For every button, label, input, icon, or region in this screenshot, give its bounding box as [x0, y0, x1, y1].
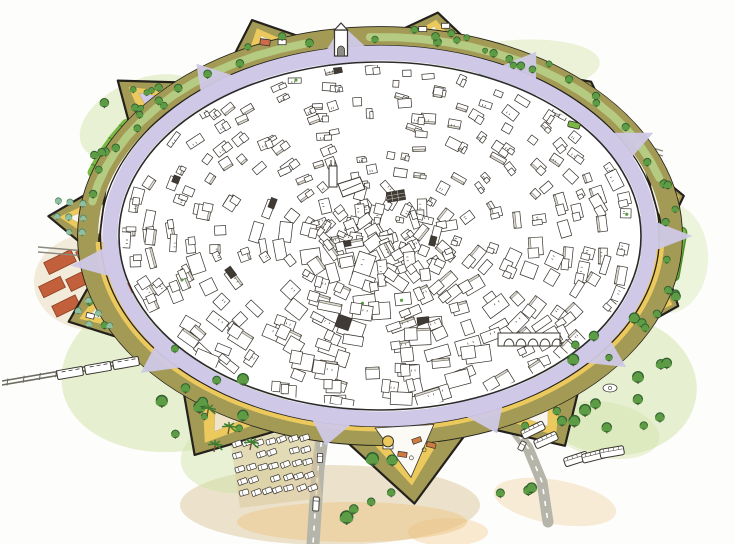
tree-canopy-lobe [340, 515, 347, 522]
tree-canopy-lobe [239, 428, 242, 431]
tree-canopy-lobe [98, 313, 101, 316]
tree-canopy-lobe [354, 508, 358, 512]
illustration-stage [0, 0, 734, 544]
tree-canopy-lobe [83, 217, 86, 220]
building-shaded-face [413, 149, 424, 152]
tree-canopy-lobe [55, 200, 59, 204]
tree-canopy-lobe [159, 87, 163, 91]
building [145, 229, 157, 246]
building-annex [449, 302, 460, 313]
building [357, 156, 367, 163]
tree-canopy-lobe [411, 29, 415, 33]
tree-canopy-lobe [197, 401, 202, 406]
tree-canopy-lobe [664, 289, 668, 293]
tree-canopy-lobe [579, 409, 585, 415]
tree-canopy-lobe [574, 420, 579, 425]
tree-canopy-lobe [130, 89, 133, 92]
tree-canopy-lobe [282, 36, 286, 40]
building [324, 380, 341, 393]
building [420, 268, 431, 281]
building-block [393, 168, 407, 178]
tree-canopy-lobe [367, 501, 371, 505]
building [400, 347, 414, 362]
building-annex [133, 255, 141, 261]
tree-canopy-lobe [485, 50, 488, 53]
tree-canopy-lobe [85, 299, 88, 302]
tree-canopy-lobe [557, 410, 561, 414]
tree-canopy-lobe [86, 323, 89, 326]
tree-canopy-lobe [243, 414, 248, 419]
tree-canopy-lobe [66, 231, 69, 234]
tree-canopy-lobe [438, 41, 442, 45]
building [527, 237, 543, 258]
tree-canopy-lobe [500, 492, 504, 496]
tree-canopy-lobe [159, 100, 163, 104]
tree-canopy-lobe [633, 398, 638, 403]
tree-canopy-lobe [467, 37, 470, 40]
tree-canopy-lobe [83, 203, 86, 206]
building [432, 358, 451, 369]
tree-canopy-lobe [97, 151, 101, 155]
orchard-tree [55, 198, 62, 205]
tree-canopy-lobe [79, 203, 83, 207]
tree-canopy-lobe [140, 114, 143, 117]
tree-canopy-lobe [447, 32, 451, 36]
tree-canopy-lobe [175, 433, 179, 437]
tree-canopy-lobe [645, 327, 649, 331]
building [398, 98, 412, 108]
tree-canopy-lobe [661, 362, 666, 367]
building [403, 70, 412, 77]
tree-canopy-lobe [88, 300, 91, 303]
tree-canopy-lobe [663, 259, 667, 263]
building-annex [373, 67, 380, 74]
palm-crown [214, 443, 216, 445]
tree-canopy-lobe [137, 107, 140, 110]
tree-canopy-lobe [57, 216, 60, 219]
tree-canopy-lobe [521, 65, 525, 69]
tree-canopy-lobe [79, 231, 83, 235]
tree-canopy-lobe [373, 458, 379, 464]
building-block [400, 347, 414, 362]
building-block [415, 131, 427, 138]
tree-canopy-lobe [160, 105, 164, 109]
tree-canopy-lobe [133, 127, 137, 131]
tree-canopy-lobe [482, 50, 485, 53]
building-annex [460, 345, 475, 359]
tree-canopy-lobe [640, 425, 644, 429]
tree-canopy-lobe [349, 508, 354, 513]
tree-canopy-lobe [533, 69, 536, 72]
tree-canopy-lobe [171, 348, 175, 352]
building [415, 131, 427, 138]
tree-canopy-lobe [93, 193, 97, 197]
tree-canopy-lobe [371, 501, 375, 505]
tree-canopy-lobe [101, 324, 105, 328]
building [369, 282, 378, 292]
building [413, 147, 426, 152]
building-annex [391, 341, 401, 350]
tree-canopy-lobe [656, 363, 661, 368]
tree-canopy-lobe [193, 405, 199, 411]
tree-canopy-lobe [505, 58, 509, 62]
building [130, 255, 142, 267]
tree-canopy-lobe [529, 68, 533, 72]
tree-canopy-lobe [175, 348, 179, 352]
tree-canopy-lobe [641, 327, 645, 331]
tree-canopy-lobe [496, 492, 501, 497]
building-annex [370, 112, 373, 119]
tree-canopy-lobe [208, 73, 212, 77]
building-annex [308, 228, 318, 239]
tree-canopy-lobe [94, 154, 98, 158]
building-annex [528, 248, 539, 258]
tree-canopy-lobe [517, 65, 521, 69]
tree-canopy-lobe [243, 378, 249, 384]
tree-canopy-lobe [589, 335, 594, 340]
tree-canopy-lobe [626, 126, 630, 130]
tree-canopy-lobe [102, 152, 106, 156]
building-annex [324, 380, 332, 389]
tree-canopy-lobe [212, 379, 217, 384]
building-annex [400, 364, 410, 376]
tree-canopy-lobe [573, 358, 579, 364]
tree-canopy-lobe [453, 39, 457, 43]
palm-crown [228, 425, 230, 427]
tree-canopy-lobe [66, 201, 70, 205]
building-block [403, 70, 412, 77]
building-block [394, 292, 411, 306]
tree-canopy-lobe [510, 64, 514, 68]
tree-canopy-lobe [90, 154, 94, 158]
building-annex [532, 219, 542, 225]
gate-arch [338, 46, 345, 56]
tree-canopy-lobe [575, 344, 579, 348]
tree-canopy-lobe [571, 344, 575, 348]
building-shaded-face [366, 367, 378, 370]
tree-canopy-lobe [75, 310, 78, 313]
building [393, 168, 407, 178]
tree-canopy-lobe [164, 105, 168, 109]
tree-canopy-lobe [605, 357, 609, 361]
tree-canopy-lobe [657, 313, 661, 317]
tree-canopy-lobe [667, 259, 671, 263]
gate-tower-roof [335, 23, 348, 30]
tree-canopy-lobe [632, 376, 638, 382]
tree-canopy-lobe [647, 161, 651, 165]
tree-canopy-lobe [463, 37, 466, 40]
building [353, 97, 362, 106]
building-block [214, 226, 226, 236]
building [620, 209, 631, 218]
tree-canopy-lobe [174, 87, 178, 91]
tree-canopy-lobe [237, 378, 243, 384]
tree-canopy-lobe [106, 325, 109, 328]
tree-canopy-lobe [248, 46, 251, 49]
building-annex [420, 175, 426, 179]
tree-canopy-lobe [607, 427, 612, 432]
tree-canopy-lobe [557, 420, 562, 425]
tree-canopy-lobe [655, 416, 660, 421]
building-block [339, 256, 354, 269]
tree-canopy-lobe [69, 216, 72, 219]
tree-canopy-lobe [305, 42, 309, 46]
tree-canopy-lobe [664, 184, 668, 188]
wash-blob [490, 470, 620, 535]
tree-canopy-lobe [162, 400, 168, 406]
tree-canopy-lobe [386, 459, 392, 465]
tree-canopy-lobe [95, 169, 99, 173]
building-annex [126, 227, 136, 231]
building [411, 114, 425, 125]
building-annex [350, 302, 362, 314]
building-block [353, 97, 362, 106]
building [433, 87, 443, 98]
tree-canopy-lobe [675, 209, 678, 212]
truck-body [313, 497, 320, 511]
tree-canopy-lobe [653, 313, 657, 317]
building-annex [617, 249, 625, 256]
building-annex [396, 216, 400, 220]
tree-canopy-lobe [667, 362, 672, 367]
building [366, 367, 380, 379]
building-annex [132, 197, 139, 205]
tree-canopy-lobe [660, 416, 664, 420]
tree-canopy-lobe [668, 184, 672, 188]
tree-canopy-lobe [596, 95, 600, 99]
building-annex [167, 219, 174, 228]
tree-canopy-lobe [568, 419, 574, 425]
tree-canopy-lobe [58, 200, 61, 203]
tree-canopy-lobe [104, 102, 108, 106]
pavilion-dome [383, 436, 394, 447]
building [339, 256, 354, 269]
tree-canopy-lobe [69, 232, 72, 235]
building-annex [324, 135, 331, 141]
tree-canopy-lobe [596, 403, 601, 408]
palm-crown [207, 407, 209, 409]
tree-canopy-lobe [205, 416, 208, 419]
building-annex [339, 87, 343, 92]
building-annex [281, 384, 289, 394]
building [422, 73, 435, 79]
truck [313, 497, 320, 511]
tree-canopy-lobe [201, 416, 205, 420]
building [596, 215, 607, 232]
building [170, 234, 177, 252]
tree-canopy-lobe [148, 90, 151, 93]
tree-canopy-lobe [387, 491, 391, 495]
tree-canopy-lobe [569, 79, 573, 83]
tree-canopy-lobe [82, 232, 85, 235]
tree-canopy-lobe [594, 335, 599, 340]
tree-canopy-lobe [70, 202, 73, 205]
building [214, 226, 226, 236]
palm-crown [250, 441, 252, 443]
tree-canopy-lobe [546, 63, 549, 66]
tree-canopy-lobe [54, 216, 57, 219]
tree-canopy-lobe [532, 487, 537, 492]
tree-canopy-lobe [494, 53, 498, 57]
tree-canopy-lobe [391, 492, 395, 496]
tree-canopy-lobe [137, 128, 141, 132]
tree-canopy-lobe [609, 357, 612, 360]
building-block [387, 151, 396, 159]
red-roof-house [260, 39, 271, 46]
tree-canopy-lobe [133, 89, 136, 92]
tree-canopy-lobe [217, 379, 221, 383]
tree-canopy-lobe [155, 86, 159, 90]
park-fountain [603, 384, 617, 392]
tree-canopy-lobe [590, 402, 595, 407]
tree-canopy-lobe [451, 33, 455, 37]
tree-canopy-lobe [244, 46, 248, 50]
tree-canopy-lobe [203, 73, 207, 77]
building-annex [323, 116, 329, 122]
tree-canopy-lobe [643, 161, 647, 165]
building [394, 292, 411, 306]
tree-canopy-lobe [525, 425, 529, 429]
tree-canopy-lobe [509, 58, 513, 62]
tree-canopy-lobe [666, 221, 670, 225]
building-block [369, 282, 378, 292]
building-annex [330, 395, 342, 405]
building [366, 109, 373, 119]
building [393, 80, 399, 87]
car-body [317, 453, 323, 462]
tree-canopy-lobe [116, 147, 120, 151]
building-block [422, 73, 435, 79]
building-block [393, 80, 399, 87]
building [513, 212, 522, 229]
tree-canopy-lobe [136, 114, 140, 118]
tree-canopy-lobe [671, 295, 676, 300]
tree-canopy-lobe [181, 387, 186, 392]
tree-canopy-lobe [414, 29, 418, 33]
tree-canopy-lobe [278, 35, 282, 39]
building [288, 78, 301, 83]
bastion-house [442, 23, 450, 28]
tree-canopy-lobe [431, 35, 435, 39]
tree-canopy-lobe [567, 358, 573, 364]
tree-canopy-lobe [95, 312, 98, 315]
walled-city-map-illustration [0, 0, 734, 544]
tree-canopy-lobe [240, 63, 244, 67]
building [317, 132, 332, 140]
tree-canopy-lobe [622, 126, 626, 130]
tree-canopy-lobe [65, 216, 69, 220]
tree-canopy-lobe [672, 208, 676, 212]
building-annex [418, 117, 425, 125]
tree-canopy-lobe [596, 102, 600, 106]
domed-pavilion [383, 436, 394, 449]
building-annex [405, 156, 410, 162]
building-annex [381, 379, 390, 393]
tree-canopy-lobe [489, 52, 493, 56]
building-annex [362, 158, 367, 162]
building-block [420, 268, 431, 281]
tree-canopy-lobe [80, 217, 83, 220]
tree-canopy-lobe [186, 387, 190, 391]
tree-canopy-lobe [526, 486, 531, 491]
tree-canopy-lobe [392, 459, 397, 464]
building-annex [202, 203, 213, 213]
tree-canopy-lobe [602, 426, 607, 431]
tree-canopy-lobe [562, 420, 567, 425]
tree-canopy-lobe [668, 289, 672, 293]
building-annex [290, 350, 303, 364]
church-tower [329, 166, 337, 187]
building-annex [572, 212, 581, 221]
tree-canopy-lobe [644, 425, 648, 429]
bastion-house [419, 27, 427, 32]
building-block [170, 234, 177, 252]
car [317, 453, 323, 462]
tree-canopy-lobe [375, 39, 378, 42]
tree-canopy-lobe [638, 376, 644, 382]
building-annex [271, 381, 280, 392]
tree-canopy-lobe [310, 42, 314, 46]
tree-canopy-lobe [131, 107, 135, 111]
tree-canopy-lobe [171, 433, 175, 437]
tree-canopy-lobe [100, 102, 105, 107]
tree-canopy-lobe [662, 221, 666, 225]
tree-canopy-lobe [366, 457, 373, 464]
tree-canopy-lobe [593, 102, 597, 106]
tree-canopy-lobe [513, 65, 516, 68]
building-annex [404, 328, 417, 341]
building-annex [374, 203, 385, 215]
building [366, 164, 377, 175]
tree-canopy-lobe [585, 409, 591, 415]
tree-canopy-lobe [178, 87, 182, 91]
building-block [390, 392, 412, 406]
tree-canopy-lobe [457, 39, 460, 42]
tree-canopy-lobe [89, 193, 93, 197]
tree-canopy-lobe [565, 78, 569, 82]
tree-canopy-lobe [592, 95, 596, 99]
tree-canopy-lobe [371, 38, 375, 42]
tree-canopy-lobe [89, 323, 92, 326]
tree-canopy-lobe [660, 183, 664, 187]
tree-canopy-lobe [106, 151, 110, 155]
tree-canopy-lobe [99, 169, 103, 173]
tree-canopy-lobe [629, 317, 635, 323]
tree-canopy-lobe [638, 398, 643, 403]
tree-canopy-lobe [521, 425, 525, 429]
tree-canopy-lobe [433, 41, 437, 45]
tree-canopy-lobe [141, 108, 144, 111]
tree-canopy-lobe [436, 36, 440, 40]
tree-canopy-lobe [347, 516, 353, 522]
tree-canopy-lobe [112, 147, 116, 151]
building-block [398, 98, 412, 108]
market-stall [398, 451, 408, 457]
building-block [366, 164, 377, 175]
building [448, 119, 462, 130]
building [390, 392, 412, 406]
tree-canopy-lobe [152, 90, 155, 93]
tree-canopy-lobe [78, 310, 81, 313]
tree-canopy-lobe [156, 399, 162, 405]
tree-canopy-lobe [144, 92, 147, 95]
building-annex [188, 237, 195, 245]
tree-canopy-lobe [237, 414, 243, 420]
tree-canopy-lobe [549, 63, 552, 66]
tree-canopy-lobe [637, 322, 642, 327]
tree-canopy-lobe [236, 62, 240, 66]
building [387, 151, 396, 159]
